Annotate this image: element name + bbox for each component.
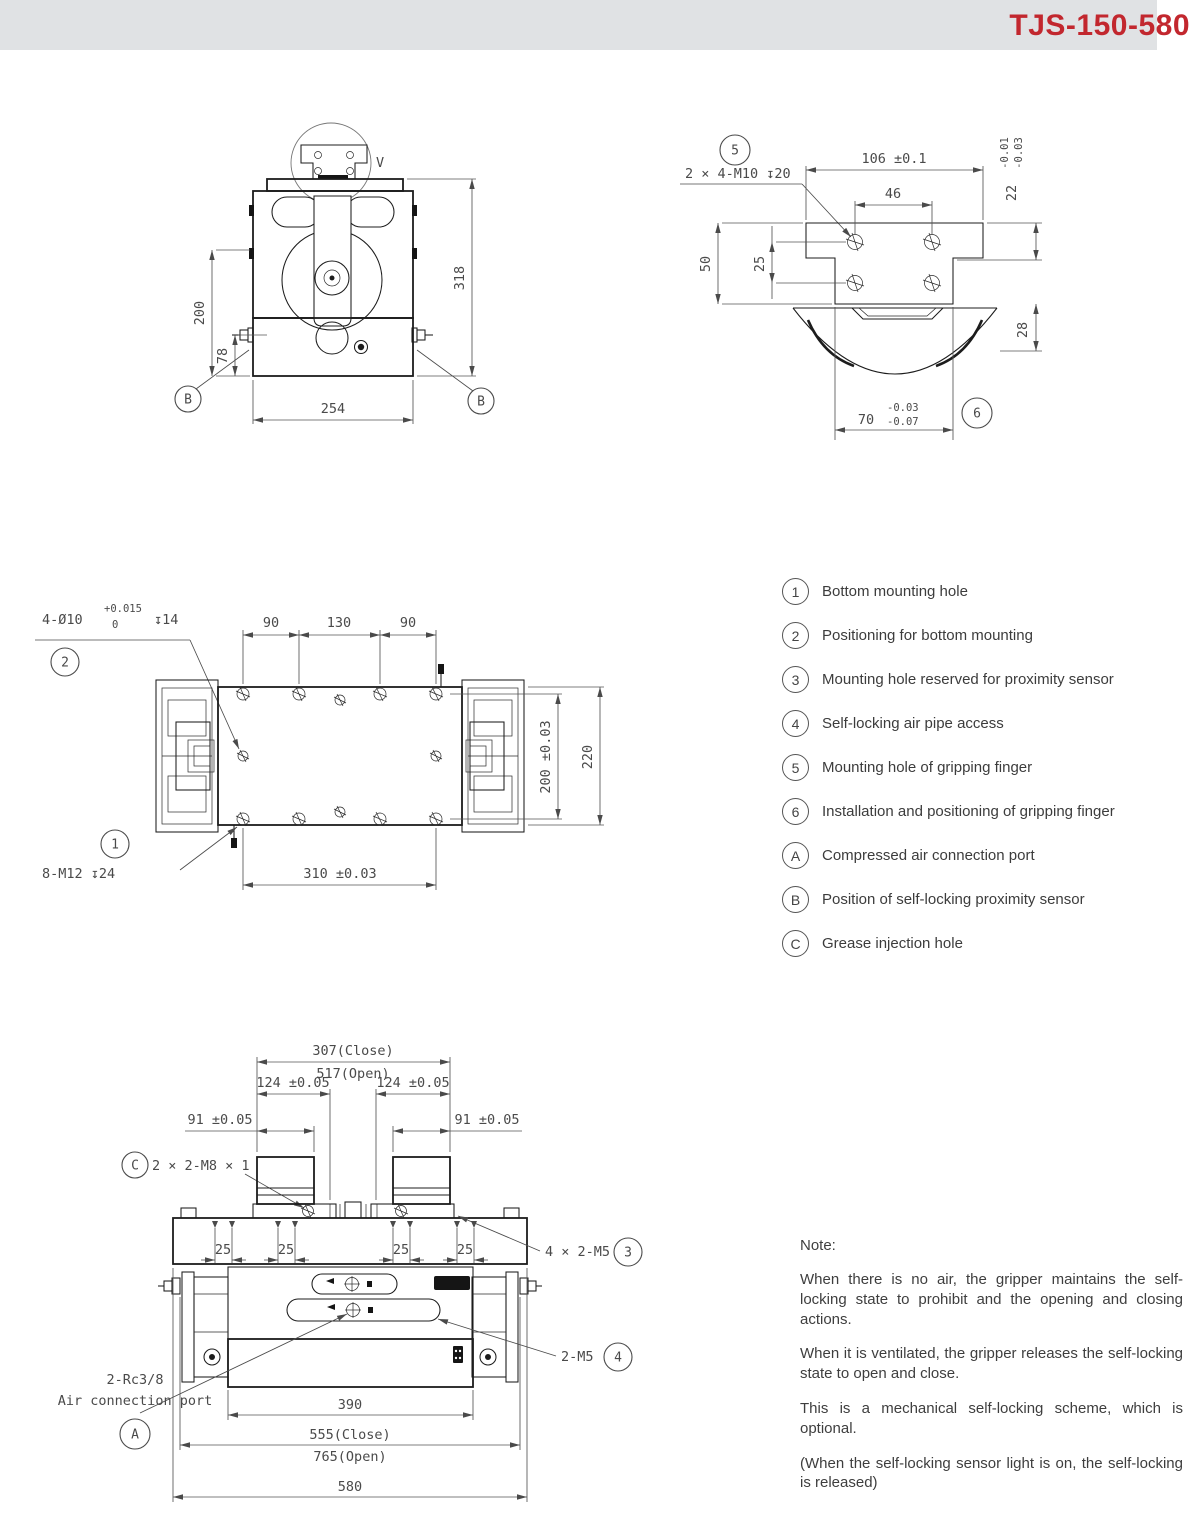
thread-callout: 2 × 4-M10 ↧20: [685, 166, 791, 182]
positioning-tol-upper: +0.015: [104, 603, 142, 615]
legend-symbol-3: 3: [782, 666, 809, 693]
side-view-drawing: 307(Close) 517(Open) 124 ±0.05 124 ±0.05…: [40, 1032, 690, 1537]
note-paragraph-3: This is a mechanical self-locking scheme…: [800, 1399, 1183, 1439]
dim-580: 580: [338, 1479, 362, 1495]
front-view-drawing: V: [150, 100, 530, 450]
legend-label-2: Positioning for bottom mounting: [822, 627, 1033, 644]
svg-text:A: A: [131, 1428, 139, 1443]
dim-91-right: 91 ±0.05: [454, 1112, 519, 1128]
dim-106: 106 ±0.1: [861, 151, 926, 167]
sensor-hole-marks: 25 25 25 25: [201, 1221, 488, 1263]
legend-label-5: Mounting hole of gripping finger: [822, 759, 1032, 776]
mounting-callout: 8-M12 ↧24: [42, 866, 115, 882]
sensor-pin-top: [438, 664, 444, 687]
legend-label-C: Grease injection hole: [822, 935, 963, 952]
dim-25-2: 25: [278, 1242, 294, 1258]
side-view-top-dimensions: 307(Close) 517(Open) 124 ±0.05 124 ±0.05…: [185, 1043, 522, 1200]
legend-item-B: B Position of self-locking proximity sen…: [782, 886, 1115, 913]
note-section: Note: When there is no air, the gripper …: [800, 1237, 1183, 1508]
dim-25-1: 25: [215, 1242, 231, 1258]
detail-view-dimensions: 106 ±0.1 46 50 25 -0.01 -0.03 22 28: [698, 137, 1042, 440]
svg-text:B: B: [184, 393, 192, 408]
air-callout-line2: Air connection port: [58, 1393, 212, 1409]
plan-view-dimensions: 90 130 90 200 ±0.03 220 310 ±0.03: [243, 615, 604, 890]
dim-130: 130: [327, 615, 351, 631]
note-paragraph-2: When it is ventilated, the gripper relea…: [800, 1344, 1183, 1384]
legend-symbol-5: 5: [782, 754, 809, 781]
dim-22-tol-lower: -0.03: [1013, 137, 1025, 169]
positioning-depth: ↧14: [154, 612, 178, 628]
dim-254: 254: [321, 401, 345, 417]
legend-symbol-1: 1: [782, 578, 809, 605]
svg-text:4: 4: [614, 1351, 622, 1366]
legend-symbol-B: B: [782, 886, 809, 913]
dim-70-tol-upper: -0.03: [887, 402, 919, 414]
airpipe-callout: 2-M5: [561, 1349, 594, 1365]
note-paragraph-1: When there is no air, the gripper mainta…: [800, 1270, 1183, 1329]
grease-callout: 2 × 2-M8 × 1: [152, 1158, 250, 1174]
balloon-1-callout: 1 8-M12 ↧24: [42, 827, 237, 882]
page-title: TJS-150-580: [1009, 9, 1190, 43]
dim-22-tol-upper: -0.01: [999, 137, 1011, 169]
dim-78: 78: [215, 348, 231, 364]
dim-90-left: 90: [263, 615, 279, 631]
balloon-3-callout: 4 × 2-M5 3: [458, 1216, 642, 1266]
dim-90-right: 90: [400, 615, 416, 631]
legend-label-6: Installation and positioning of gripping…: [822, 803, 1115, 820]
air-port-open: [344, 1276, 360, 1292]
finger-mount-plate: [806, 223, 983, 304]
legend-label-4: Self-locking air pipe access: [822, 715, 1004, 732]
legend-symbol-2: 2: [782, 622, 809, 649]
dim-200: 200: [192, 301, 208, 325]
dim-307-close: 307(Close): [312, 1043, 393, 1059]
svg-text:1: 1: [111, 838, 119, 853]
sensor-connector: [453, 1346, 463, 1363]
header-bar: [0, 0, 1157, 50]
dim-124-right: 124 ±0.05: [376, 1075, 449, 1091]
svg-text:2: 2: [61, 656, 69, 671]
balloon-a-callout: 2-Rc3/8 Air connection port A: [58, 1314, 347, 1449]
close-arrow-mark: [327, 1304, 335, 1310]
svg-text:6: 6: [973, 407, 981, 422]
dim-25-3: 25: [393, 1242, 409, 1258]
dim-50: 50: [698, 256, 714, 272]
dim-555-close: 555(Close): [309, 1427, 390, 1443]
svg-text:5: 5: [731, 144, 739, 159]
legend-item-2: 2 Positioning for bottom mounting: [782, 622, 1115, 649]
legend: 1 Bottom mounting hole 2 Positioning for…: [782, 578, 1115, 957]
positioning-holes: [237, 694, 442, 818]
svg-text:B: B: [477, 395, 485, 410]
sensor-screw-right: [412, 328, 433, 342]
gripper-side-body: 25 25 25 25: [158, 1157, 542, 1387]
legend-label-A: Compressed air connection port: [822, 847, 1035, 864]
balloon-6: 6: [962, 398, 992, 428]
dim-124-left: 124 ±0.05: [256, 1075, 329, 1091]
balloon-2-callout: 4-Ø10 +0.015 0 ↧14 2: [35, 603, 239, 749]
legend-label-3: Mounting hole reserved for proximity sen…: [822, 671, 1114, 688]
dim-91-left: 91 ±0.05: [187, 1112, 252, 1128]
dim-70-tol-lower: -0.07: [887, 416, 919, 428]
balloon-4-callout: 2-M5 4: [438, 1319, 632, 1371]
dim-46: 46: [885, 186, 901, 202]
legend-label-1: Bottom mounting hole: [822, 583, 968, 600]
grease-fitting-right: [394, 1204, 408, 1218]
legend-item-4: 4 Self-locking air pipe access: [782, 710, 1115, 737]
gripper-top-profile: [793, 308, 997, 374]
gripper-plan-body: [156, 664, 524, 848]
legend-symbol-4: 4: [782, 710, 809, 737]
sensor-callout: 4 × 2-M5: [545, 1244, 610, 1260]
legend-item-A: A Compressed air connection port: [782, 842, 1115, 869]
balloon-c-callout: C 2 × 2-M8 × 1: [122, 1152, 304, 1208]
svg-text:3: 3: [624, 1246, 632, 1261]
legend-item-3: 3 Mounting hole reserved for proximity s…: [782, 666, 1115, 693]
air-port-close: [345, 1302, 361, 1318]
sensor-pin-bottom: [231, 825, 237, 848]
legend-item-6: 6 Installation and positioning of grippi…: [782, 798, 1115, 825]
air-callout-line1: 2-Rc3/8: [107, 1372, 164, 1388]
finger-detail-drawing: 5 2 × 4-M10 ↧20: [680, 108, 1080, 453]
legend-item-C: C Grease injection hole: [782, 930, 1115, 957]
positioning-tol-lower: 0: [112, 619, 118, 631]
legend-symbol-C: C: [782, 930, 809, 957]
note-title: Note:: [800, 1237, 1183, 1254]
brand-badge: [434, 1276, 470, 1290]
legend-label-B: Position of self-locking proximity senso…: [822, 891, 1085, 908]
dim-220: 220: [580, 745, 596, 769]
dim-22: 22: [1004, 185, 1020, 201]
detail-marker-label: V: [376, 155, 384, 171]
dim-200: 200 ±0.03: [538, 720, 554, 793]
dim-765-open: 765(Open): [313, 1449, 386, 1465]
note-paragraph-4: (When the self-locking sensor light is o…: [800, 1454, 1183, 1494]
plan-view-drawing: 4-Ø10 +0.015 0 ↧14 2: [30, 582, 630, 917]
dim-390: 390: [338, 1397, 362, 1413]
positioning-callout: 4-Ø10: [42, 612, 83, 628]
mounting-holes: [236, 687, 443, 826]
dim-70: 70: [858, 412, 874, 428]
open-arrow-mark: [326, 1278, 334, 1284]
gripper-front-body: [232, 179, 433, 376]
balloon-b-right: B: [417, 350, 494, 414]
legend-symbol-A: A: [782, 842, 809, 869]
legend-item-1: 1 Bottom mounting hole: [782, 578, 1115, 605]
legend-symbol-6: 6: [782, 798, 809, 825]
legend-item-5: 5 Mounting hole of gripping finger: [782, 754, 1115, 781]
dim-28: 28: [1015, 322, 1031, 338]
svg-text:C: C: [131, 1159, 139, 1174]
dim-25-4: 25: [457, 1242, 473, 1258]
dim-318: 318: [452, 266, 468, 290]
grease-fitting-left: [301, 1204, 315, 1218]
dim-25: 25: [752, 256, 768, 272]
datasheet-page: TJS-150-580 V: [0, 0, 1200, 1537]
balloon-5-callout: 5 2 × 4-M10 ↧20: [680, 135, 851, 237]
dim-310: 310 ±0.03: [303, 866, 376, 882]
